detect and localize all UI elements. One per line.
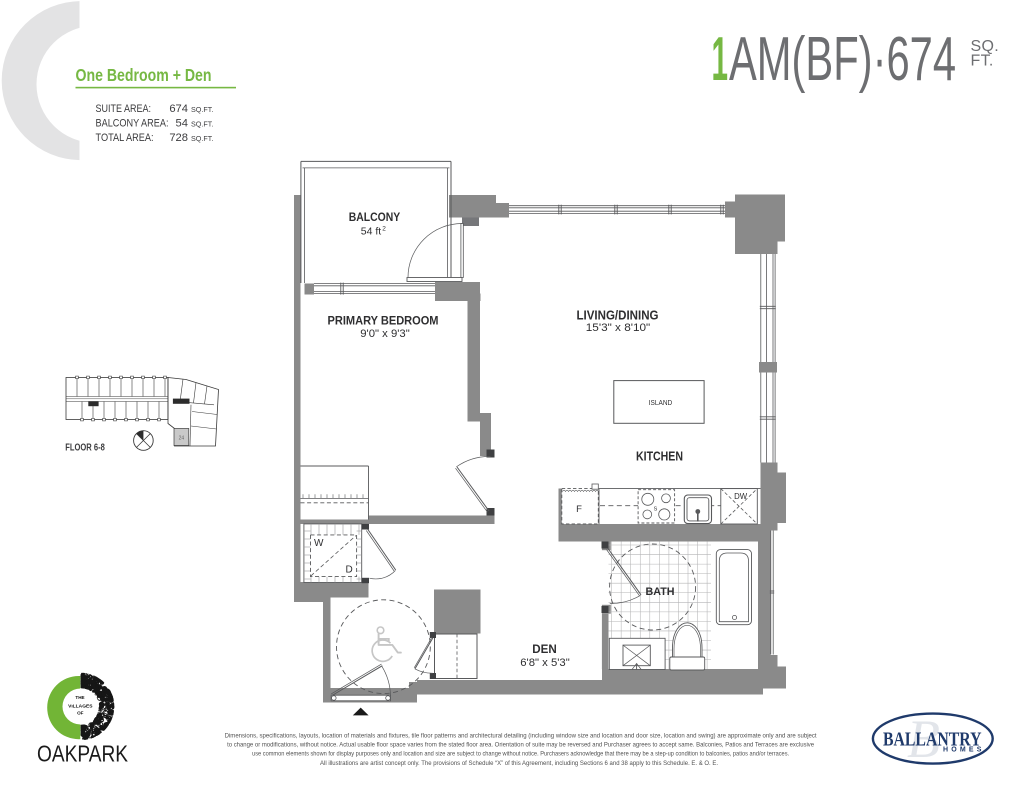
svg-text:VıLLAGES: VıLLAGES bbox=[68, 704, 93, 710]
svg-text:54 ft: 54 ft bbox=[361, 226, 382, 238]
svg-text:SUITE AREA:: SUITE AREA: bbox=[96, 103, 152, 115]
svg-text:TOTAL AREA:: TOTAL AREA: bbox=[96, 132, 154, 144]
svg-text:24: 24 bbox=[179, 436, 185, 442]
svg-text:SQ.FT.: SQ.FT. bbox=[191, 134, 213, 143]
svg-text:Dimensions, specifications, la: Dimensions, specifications, layouts, loc… bbox=[225, 733, 817, 740]
svg-text:1: 1 bbox=[712, 25, 729, 94]
svg-text:728: 728 bbox=[169, 132, 188, 144]
svg-text:PRIMARY BEDROOM: PRIMARY BEDROOM bbox=[328, 314, 439, 328]
svg-text:BATH: BATH bbox=[646, 586, 675, 598]
svg-text:BALCONY AREA:: BALCONY AREA: bbox=[96, 117, 169, 129]
svg-text:FT.: FT. bbox=[971, 53, 994, 70]
svg-text:One Bedroom + Den: One Bedroom + Den bbox=[76, 65, 212, 85]
svg-text:use common elements shown for: use common elements shown for display pu… bbox=[252, 751, 789, 758]
svg-text:ISLAND: ISLAND bbox=[649, 398, 673, 407]
svg-text:SQ.FT.: SQ.FT. bbox=[191, 119, 213, 128]
svg-text:SQ.FT.: SQ.FT. bbox=[191, 105, 213, 114]
svg-text:674: 674 bbox=[169, 103, 188, 115]
svg-text:FLOOR 6-8: FLOOR 6-8 bbox=[65, 442, 105, 453]
svg-text:W: W bbox=[314, 538, 324, 549]
svg-text:BALCONY: BALCONY bbox=[349, 212, 401, 224]
svg-text:OF: OF bbox=[77, 711, 84, 716]
svg-text:54: 54 bbox=[176, 117, 188, 129]
svg-text:OAKPARK: OAKPARK bbox=[37, 741, 129, 767]
svg-text:All illustrations are artist c: All illustrations are artist concept onl… bbox=[320, 760, 718, 767]
svg-text:KITCHEN: KITCHEN bbox=[636, 450, 683, 464]
svg-text:F: F bbox=[576, 504, 582, 515]
svg-text:THE: THE bbox=[75, 695, 84, 700]
svg-text:AM(BF)·674: AM(BF)·674 bbox=[729, 25, 956, 94]
svg-text:to change or modifications, wi: to change or modifications, without noti… bbox=[227, 741, 814, 748]
svg-text:D: D bbox=[346, 565, 353, 576]
svg-text:HOMES: HOMES bbox=[943, 747, 985, 754]
svg-text:2: 2 bbox=[382, 226, 386, 233]
svg-text:9'0" x 9'3": 9'0" x 9'3" bbox=[360, 328, 410, 340]
svg-text:DW: DW bbox=[734, 492, 748, 501]
svg-text:S: S bbox=[654, 507, 658, 513]
svg-text:DEN: DEN bbox=[532, 642, 557, 656]
svg-text:6'8" x 5'3": 6'8" x 5'3" bbox=[520, 657, 570, 669]
svg-text:LIVING/DINING: LIVING/DINING bbox=[577, 309, 659, 323]
svg-text:15'3" x 8'10": 15'3" x 8'10" bbox=[586, 322, 651, 334]
